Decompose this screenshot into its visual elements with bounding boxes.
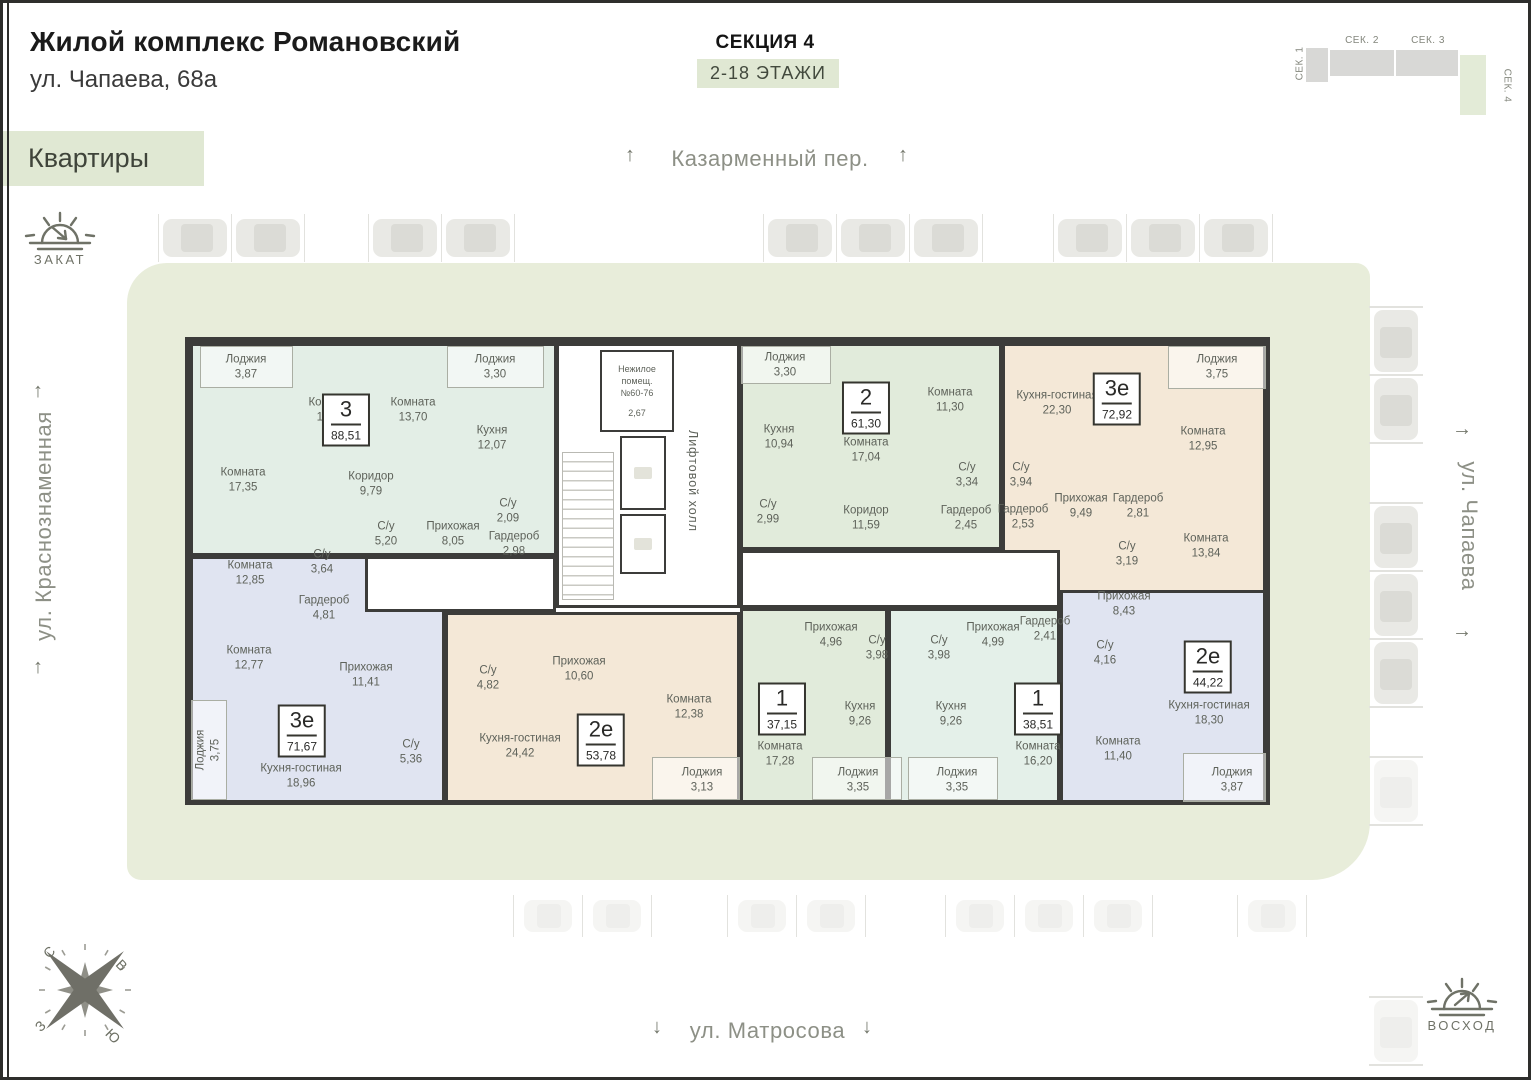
room-label: С/у3,64 — [311, 547, 333, 576]
street-bottom-arrow-left-icon: ↓ — [652, 1016, 662, 1039]
room-area: 2,41 — [1020, 629, 1071, 644]
parking-divider — [1237, 895, 1239, 937]
car-roof — [391, 224, 423, 251]
room-label: Комната17,35 — [220, 465, 265, 494]
car-roof — [181, 224, 213, 251]
street-right-arrow-bottom-icon: → — [1452, 620, 1472, 643]
floor-plan-page: Жилой комплекс Романовский ул. Чапаева, … — [0, 0, 1531, 1080]
room-area: 13,84 — [1183, 546, 1228, 561]
room-area: 5,20 — [375, 534, 397, 549]
room-label: С/у5,36 — [400, 737, 422, 766]
room-name: Комната — [1183, 532, 1228, 544]
room-label: Кухня-гостиная18,96 — [260, 761, 341, 790]
room-name: Лоджия — [937, 766, 978, 778]
room-label: Гардероб2,81 — [1113, 491, 1164, 520]
room-label: Гардероб2,53 — [998, 502, 1049, 531]
room-name: Комната — [227, 559, 272, 571]
parking-divider — [1369, 374, 1423, 376]
room-area: 11,40 — [1095, 749, 1140, 764]
car-icon — [446, 219, 510, 257]
car-icon — [738, 900, 786, 932]
car-icon — [914, 219, 978, 257]
car-roof — [606, 904, 630, 927]
apartment-badge-1-38,51[interactable]: 138,51 — [1014, 683, 1062, 736]
parking-divider — [865, 895, 867, 937]
room-name: С/у — [930, 634, 947, 646]
room-name: Кухня — [845, 700, 876, 712]
room-label: Лоджия3,30 — [765, 350, 806, 379]
room-area: 4,99 — [966, 635, 1019, 650]
room-name: Комната — [927, 386, 972, 398]
apartment-type: 3е — [1102, 378, 1132, 405]
room-label: Комната13,84 — [1183, 531, 1228, 560]
room-area: 8,05 — [426, 534, 479, 549]
parking-divider — [1272, 214, 1274, 262]
minimap-label-sec4: СЕК. 4 — [1501, 69, 1512, 103]
car-roof — [1076, 224, 1108, 251]
room-name: Кухня — [936, 700, 967, 712]
room-area: 12,95 — [1180, 439, 1225, 454]
room-name: Комната — [1095, 735, 1140, 747]
room-name: Лоджия — [475, 353, 516, 365]
room-area: 11,59 — [843, 518, 888, 533]
room-name: Прихожая — [966, 621, 1019, 633]
room-label: Лоджия3,87 — [226, 352, 267, 381]
room-area: 10,94 — [764, 437, 795, 452]
room-name: Лоджия — [1212, 766, 1253, 778]
room-area: 3,98 — [928, 648, 950, 663]
room-name: Гардероб — [299, 594, 350, 606]
room-area: 2,09 — [497, 511, 519, 526]
room-name: С/у — [868, 634, 885, 646]
room-name: Кухня — [477, 424, 508, 436]
non-residential-room: Нежилое помещ. №60-76 2,67 — [600, 350, 674, 432]
room-label: Гардероб4,81 — [299, 593, 350, 622]
room-area: 2,98 — [489, 544, 540, 559]
parking-divider — [1369, 996, 1423, 998]
parking-divider — [945, 895, 947, 937]
street-top-label: Казарменный пер. — [655, 146, 885, 172]
room-area: 12,85 — [227, 573, 272, 588]
parking-divider — [441, 214, 443, 262]
room-name: С/у — [1012, 461, 1029, 473]
apartment-badge-3е-71,67[interactable]: 3е71,67 — [278, 705, 326, 758]
room-name: Гардероб — [941, 504, 992, 516]
room-name: Комната — [226, 644, 271, 656]
room-name: Прихожая — [339, 661, 392, 673]
room-name: С/у — [499, 497, 516, 509]
room-name: Прихожая — [1097, 590, 1150, 602]
room-name: С/у — [479, 664, 496, 676]
room-name: Комната — [1015, 740, 1060, 752]
car-roof — [537, 904, 561, 927]
car-icon — [841, 219, 905, 257]
room-label: Прихожая9,49 — [1054, 491, 1107, 520]
room-label: Лоджия3,87 — [1212, 765, 1253, 794]
room-area: 9,79 — [348, 484, 393, 499]
room-label: Коридор11,59 — [843, 503, 888, 532]
room-area: 18,96 — [260, 776, 341, 791]
room-area: 18,30 — [1168, 713, 1249, 728]
street-bottom-label: ул. Матросова — [680, 1018, 855, 1044]
car-roof — [1380, 777, 1412, 808]
room-name: Прихожая — [552, 655, 605, 667]
room-name: С/у — [402, 738, 419, 750]
car-icon — [1094, 900, 1142, 932]
room-label: Комната13,70 — [390, 395, 435, 424]
room-area: 17,04 — [843, 450, 888, 465]
parking-divider — [796, 895, 798, 937]
elevator-1 — [620, 436, 666, 510]
parking-divider — [1053, 214, 1055, 262]
elevator-cabin-icon — [634, 538, 652, 550]
street-arrow-up-left-icon: ↑ — [625, 144, 635, 167]
elevator-2 — [620, 514, 666, 574]
room-label: Кухня-гостиная18,30 — [1168, 698, 1249, 727]
room-area: 4,96 — [804, 635, 857, 650]
room-area: 5,36 — [400, 752, 422, 767]
room-area: 4,81 — [299, 608, 350, 623]
room-name: Кухня-гостиная — [1016, 389, 1097, 401]
parking-divider — [582, 895, 584, 937]
car-roof — [859, 224, 891, 251]
room-label: С/у2,99 — [757, 497, 779, 526]
apartment-badge-3-88,51[interactable]: 388,51 — [322, 394, 370, 447]
room-name: Кухня-гостиная — [479, 732, 560, 744]
street-arrow-up-right-icon: ↑ — [898, 144, 908, 167]
car-icon — [236, 219, 300, 257]
apartment-badge-1-37,15[interactable]: 137,15 — [758, 683, 806, 736]
room-label: Комната17,04 — [843, 435, 888, 464]
street-right-arrow-top-icon: → — [1452, 418, 1472, 441]
apartment-type: 2е — [586, 719, 616, 746]
car-icon — [1374, 506, 1418, 568]
room-label: С/у3,34 — [956, 460, 978, 489]
room-area: 3,35 — [838, 780, 879, 795]
parking-divider — [651, 895, 653, 937]
parking-divider — [909, 214, 911, 262]
address-subtitle: ул. Чапаева, 68а — [30, 66, 217, 94]
room-name: Лоджия — [1197, 353, 1238, 365]
room-area: 3,30 — [475, 367, 516, 382]
corridor-area — [740, 550, 1060, 608]
nonres-line1: Нежилое — [618, 363, 656, 375]
car-roof — [969, 904, 993, 927]
car-icon — [1058, 219, 1122, 257]
room-area: 2,45 — [941, 518, 992, 533]
parking-divider — [836, 214, 838, 262]
car-roof — [1222, 224, 1254, 251]
car-icon — [524, 900, 572, 932]
car-icon — [1374, 378, 1418, 440]
parking-divider — [763, 214, 765, 262]
parking-divider — [513, 895, 515, 937]
car-roof — [1380, 395, 1412, 426]
room-area: 4,16 — [1094, 653, 1116, 668]
room-label: Комната12,95 — [1180, 424, 1225, 453]
room-area: 2,81 — [1113, 506, 1164, 521]
parking-divider — [231, 214, 233, 262]
parking-divider — [1369, 442, 1423, 444]
car-roof — [932, 224, 964, 251]
apartment-area: 61,30 — [851, 414, 881, 431]
car-roof — [786, 224, 818, 251]
page-title: Жилой комплекс Романовский — [30, 26, 460, 58]
room-name: Кухня-гостиная — [1168, 699, 1249, 711]
room-name: С/у — [313, 548, 330, 560]
compass-rose-icon — [20, 925, 150, 1055]
nonres-line2: помещ. — [622, 375, 653, 387]
elevator-cabin-icon — [634, 467, 652, 479]
parking-divider — [982, 214, 984, 262]
parking-divider — [368, 214, 370, 262]
room-area: 22,30 — [1016, 403, 1097, 418]
parking-divider — [304, 214, 306, 262]
car-icon — [1131, 219, 1195, 257]
room-area: 3,94 — [1010, 475, 1032, 490]
room-area: 3,98 — [866, 648, 888, 663]
parking-divider — [1369, 1064, 1423, 1066]
room-label: Комната11,30 — [927, 385, 972, 414]
parking-divider — [1126, 214, 1128, 262]
room-label: С/у3,94 — [1010, 460, 1032, 489]
room-label: Коридор9,79 — [348, 469, 393, 498]
room-label: С/у2,09 — [497, 496, 519, 525]
room-name: Комната — [1180, 425, 1225, 437]
room-name: Комната — [220, 466, 265, 478]
room-area: 2,53 — [998, 517, 1049, 532]
room-name: Кухня-гостиная — [260, 762, 341, 774]
room-label: Лоджия3,75 — [193, 730, 222, 771]
parking-divider — [1369, 756, 1423, 758]
room-label: Прихожая8,05 — [426, 519, 479, 548]
page-frame-left-line — [7, 0, 9, 1080]
car-icon — [1374, 760, 1418, 822]
room-area: 3,13 — [682, 780, 723, 795]
minimap-sec1[interactable] — [1306, 48, 1328, 82]
room-label: Лоджия3,13 — [682, 765, 723, 794]
room-area: 17,28 — [757, 754, 802, 769]
floors-badge: 2-18 ЭТАЖИ — [697, 59, 839, 88]
minimap-sec3[interactable] — [1396, 50, 1458, 76]
room-name: Коридор — [348, 470, 393, 482]
room-name: Лоджия — [838, 766, 879, 778]
car-icon — [1025, 900, 1073, 932]
sunrise-label: ВОСХОД — [1418, 1018, 1506, 1033]
car-icon — [1374, 642, 1418, 704]
sunset-label: ЗАКАТ — [24, 252, 96, 267]
room-label: Прихожая4,99 — [966, 620, 1019, 649]
car-roof — [1380, 591, 1412, 622]
room-area: 4,82 — [477, 678, 499, 693]
parking-divider — [158, 214, 160, 262]
apartment-badge-2е-53,78[interactable]: 2е53,78 — [577, 714, 625, 767]
apartment-area: 38,51 — [1023, 715, 1053, 732]
room-label: Прихожая4,96 — [804, 620, 857, 649]
car-roof — [1380, 1017, 1412, 1048]
car-icon — [1374, 310, 1418, 372]
parking-divider — [1306, 895, 1308, 937]
room-area: 16,20 — [1015, 754, 1060, 769]
room-label: Кухня10,94 — [764, 422, 795, 451]
room-label: Комната16,20 — [1015, 739, 1060, 768]
room-area: 9,26 — [845, 714, 876, 729]
section-title: СЕКЦИЯ 4 — [690, 32, 840, 54]
room-label: Гардероб2,45 — [941, 503, 992, 532]
car-roof — [1380, 523, 1412, 554]
room-area: 3,19 — [1116, 554, 1138, 569]
car-icon — [163, 219, 227, 257]
room-label: С/у3,98 — [866, 633, 888, 662]
room-area: 9,26 — [936, 714, 967, 729]
room-name: Гардероб — [1020, 615, 1071, 627]
minimap-label-sec3: СЕК. 3 — [1398, 35, 1458, 46]
car-icon — [373, 219, 437, 257]
car-roof — [751, 904, 775, 927]
parking-divider — [1083, 895, 1085, 937]
room-name: Лоджия — [226, 353, 267, 365]
street-left-arrow-bottom-icon: ↑ — [33, 656, 43, 679]
room-name: С/у — [1118, 540, 1135, 552]
room-name: Лоджия — [765, 351, 806, 363]
car-icon — [956, 900, 1004, 932]
room-area: 2,99 — [757, 512, 779, 527]
apartment-type: 3е — [287, 710, 317, 737]
room-area: 17,35 — [220, 480, 265, 495]
street-bottom-arrow-right-icon: ↓ — [862, 1016, 872, 1039]
room-name: С/у — [759, 498, 776, 510]
room-area: 12,77 — [226, 658, 271, 673]
car-roof — [1261, 904, 1285, 927]
room-label: Лоджия3,30 — [475, 352, 516, 381]
room-label: Гардероб2,98 — [489, 529, 540, 558]
parking-divider — [1369, 502, 1423, 504]
apartment-type: 1 — [767, 688, 797, 715]
parking-divider — [1369, 638, 1423, 640]
room-label: С/у3,98 — [928, 633, 950, 662]
room-label: Комната12,85 — [227, 558, 272, 587]
apartment-area: 71,67 — [287, 737, 317, 754]
apartment-badge-2-61,30[interactable]: 261,30 — [842, 382, 890, 435]
room-area: 13,70 — [390, 410, 435, 425]
apartment-area: 72,92 — [1102, 405, 1132, 422]
room-label: Прихожая10,60 — [552, 654, 605, 683]
parking-divider — [514, 214, 516, 262]
room-area: 3,75 — [208, 730, 223, 771]
stairwell — [562, 452, 614, 600]
room-label: Гардероб2,41 — [1020, 614, 1071, 643]
room-area: 24,42 — [479, 746, 560, 761]
parking-divider — [1369, 306, 1423, 308]
street-left-label: ул. Краснознаменная — [31, 396, 57, 656]
apartment-area: 53,78 — [586, 746, 616, 763]
room-name: С/у — [377, 520, 394, 532]
car-roof — [254, 224, 286, 251]
minimap-label-sec1: СЕК. 1 — [1294, 47, 1305, 81]
apartment-badge-2е-44,22[interactable]: 2е44,22 — [1184, 641, 1232, 694]
room-area: 12,07 — [477, 438, 508, 453]
room-area: 3,75 — [1197, 367, 1238, 382]
nonres-area: 2,67 — [628, 407, 646, 419]
room-area: 12,38 — [666, 707, 711, 722]
room-name: Гардероб — [489, 530, 540, 542]
room-area: 11,41 — [339, 675, 392, 690]
car-icon — [768, 219, 832, 257]
minimap-sec4-active[interactable] — [1460, 55, 1486, 115]
room-label: Кухня9,26 — [936, 699, 967, 728]
sunset-icon — [24, 206, 96, 256]
room-label: Прихожая11,41 — [339, 660, 392, 689]
car-roof — [1107, 904, 1131, 927]
room-name: Прихожая — [804, 621, 857, 633]
room-label: Лоджия3,35 — [838, 765, 879, 794]
apartment-badge-3е-72,92[interactable]: 3е72,92 — [1093, 373, 1141, 426]
car-roof — [464, 224, 496, 251]
room-area: 3,30 — [765, 365, 806, 380]
room-label: Комната11,40 — [1095, 734, 1140, 763]
parking-divider — [1369, 570, 1423, 572]
sunrise-icon — [1426, 972, 1498, 1022]
car-roof — [1149, 224, 1181, 251]
room-area: 3,64 — [311, 562, 333, 577]
car-icon — [1374, 1000, 1418, 1062]
room-label: Лоджия3,35 — [937, 765, 978, 794]
room-label: Кухня12,07 — [477, 423, 508, 452]
room-area: 10,60 — [552, 669, 605, 684]
apartment-area: 44,22 — [1193, 673, 1223, 690]
room-label: Лоджия3,75 — [1197, 352, 1238, 381]
room-label: Кухня9,26 — [845, 699, 876, 728]
apartment-area: 37,15 — [767, 715, 797, 732]
room-label: Прихожая8,43 — [1097, 589, 1150, 618]
room-label: Комната12,38 — [666, 692, 711, 721]
room-area: 3,34 — [956, 475, 978, 490]
car-icon — [1204, 219, 1268, 257]
car-roof — [1380, 327, 1412, 358]
car-roof — [820, 904, 844, 927]
lift-hall-label: Лифтовой холл — [686, 430, 700, 592]
room-area: 3,35 — [937, 780, 978, 795]
room-area: 3,87 — [1212, 780, 1253, 795]
apartments-nav-button[interactable]: Квартиры — [0, 131, 204, 186]
room-area: 9,49 — [1054, 506, 1107, 521]
room-name: Кухня — [764, 423, 795, 435]
room-area: 3,87 — [226, 367, 267, 382]
room-label: С/у4,82 — [477, 663, 499, 692]
room-label: С/у5,20 — [375, 519, 397, 548]
car-icon — [1248, 900, 1296, 932]
minimap-label-sec2: СЕК. 2 — [1332, 35, 1392, 46]
room-area: 11,30 — [927, 400, 972, 415]
street-right-label: ул. Чапаева — [1456, 446, 1482, 606]
room-name: Прихожая — [1054, 492, 1107, 504]
apartment-type: 1 — [1023, 688, 1053, 715]
room-name: Комната — [843, 436, 888, 448]
room-name: Лоджия — [682, 766, 723, 778]
parking-divider — [1369, 706, 1423, 708]
apartment-type: 2 — [851, 387, 881, 414]
parking-divider — [727, 895, 729, 937]
room-name: С/у — [958, 461, 975, 473]
minimap-sec2[interactable] — [1330, 50, 1394, 76]
apartment-type: 2е — [1193, 646, 1223, 673]
room-label: Кухня-гостиная24,42 — [479, 731, 560, 760]
apartment-area: 88,51 — [331, 426, 361, 443]
room-name: Коридор — [843, 504, 888, 516]
room-label: Комната17,28 — [757, 739, 802, 768]
car-icon — [593, 900, 641, 932]
room-name: Комната — [666, 693, 711, 705]
